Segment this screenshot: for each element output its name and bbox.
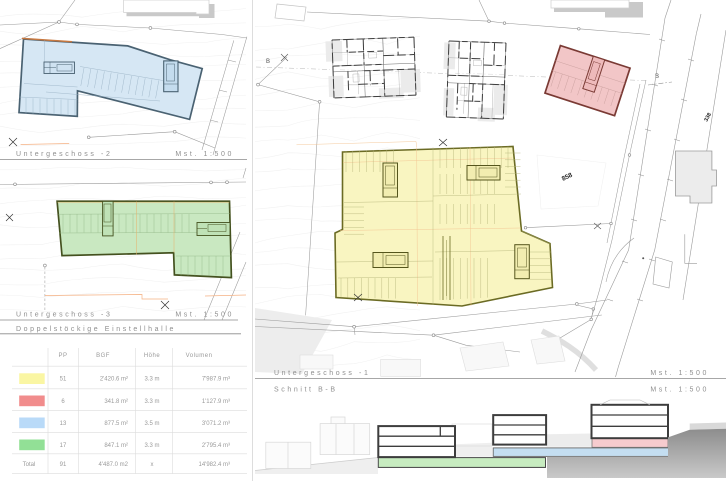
svg-text:Untergeschoss -1: Untergeschoss -1 — [274, 370, 370, 377]
svg-text:3.5 m: 3.5 m — [144, 421, 159, 427]
svg-text:3.3 m: 3.3 m — [144, 443, 159, 449]
svg-text:14'982.4 m³: 14'982.4 m³ — [199, 462, 231, 468]
svg-text:3.3 m: 3.3 m — [144, 399, 159, 405]
svg-text:Volumen: Volumen — [186, 353, 213, 359]
svg-text:4'487.0 m2: 4'487.0 m2 — [99, 462, 129, 468]
svg-text:2'420.6 m²: 2'420.6 m² — [100, 377, 128, 383]
svg-text:7'987.9 m³: 7'987.9 m³ — [202, 377, 230, 383]
svg-text:B: B — [266, 59, 270, 65]
svg-text:Untergeschoss -3: Untergeschoss -3 — [16, 312, 112, 319]
svg-text:Mst. 1:500: Mst. 1:500 — [175, 312, 234, 319]
svg-text:PP: PP — [58, 353, 67, 359]
svg-text:877.5 m²: 877.5 m² — [104, 421, 128, 427]
svg-text:1'127.9 m³: 1'127.9 m³ — [202, 399, 230, 405]
svg-text:Mst. 1:500: Mst. 1:500 — [650, 370, 709, 377]
svg-text:Untergeschoss -2: Untergeschoss -2 — [16, 151, 112, 158]
svg-text:Mst. 1:500: Mst. 1:500 — [175, 151, 234, 158]
svg-text:17: 17 — [60, 443, 67, 449]
svg-text:Höhe: Höhe — [144, 353, 161, 359]
svg-text:BGF: BGF — [96, 353, 110, 359]
svg-text:341.8 m²: 341.8 m² — [104, 399, 128, 405]
svg-text:x: x — [151, 462, 154, 468]
svg-text:Schnitt B-B: Schnitt B-B — [274, 387, 338, 394]
svg-text:13: 13 — [60, 421, 67, 427]
svg-text:2'795.4 m³: 2'795.4 m³ — [202, 443, 230, 449]
svg-text:847.1 m²: 847.1 m² — [104, 443, 128, 449]
svg-text:Mst. 1:500: Mst. 1:500 — [650, 387, 709, 394]
svg-text:51: 51 — [60, 377, 67, 383]
svg-text:Total: Total — [23, 462, 36, 468]
svg-text:91: 91 — [60, 462, 67, 468]
svg-text:3.3 m: 3.3 m — [144, 377, 159, 383]
svg-text:3'071.2 m³: 3'071.2 m³ — [202, 421, 230, 427]
svg-text:Doppelstöckige Einstellhalle: Doppelstöckige Einstellhalle — [16, 326, 176, 333]
